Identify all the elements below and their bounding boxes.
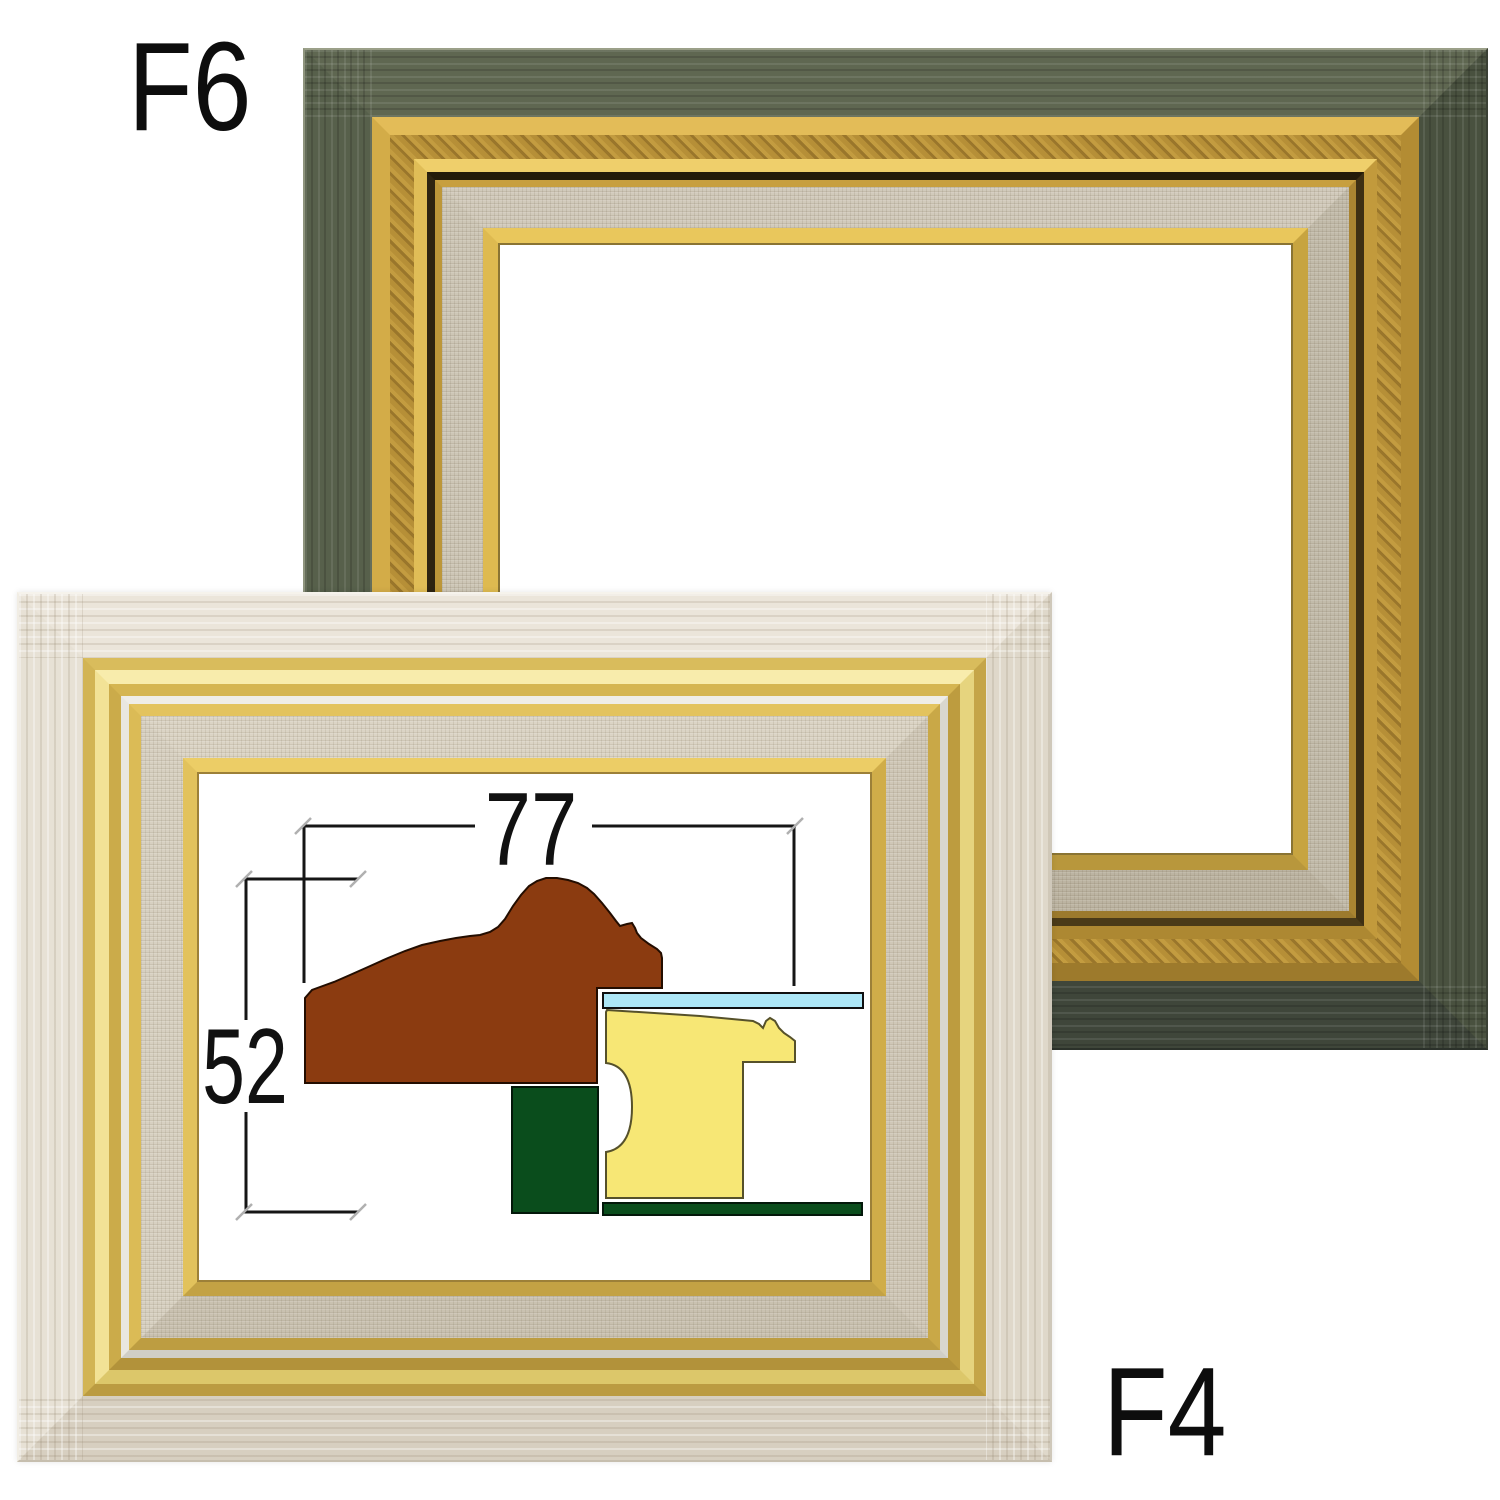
- dimension-value: 77: [485, 772, 578, 887]
- frame-size-label-f4: F4: [1103, 1349, 1227, 1475]
- dimension-value: 52: [202, 1007, 288, 1126]
- stretcher-bar: [512, 1087, 598, 1213]
- inner-moulding-profile: [606, 1010, 795, 1198]
- frame-size-label-f6: F6: [128, 24, 252, 150]
- cross-section-diagram: 7752: [197, 772, 872, 1282]
- product-image-canvas: { "page": { "background": "#ffffff" }, "…: [0, 0, 1500, 1500]
- glass: [603, 993, 863, 1008]
- backing-strip: [603, 1203, 862, 1215]
